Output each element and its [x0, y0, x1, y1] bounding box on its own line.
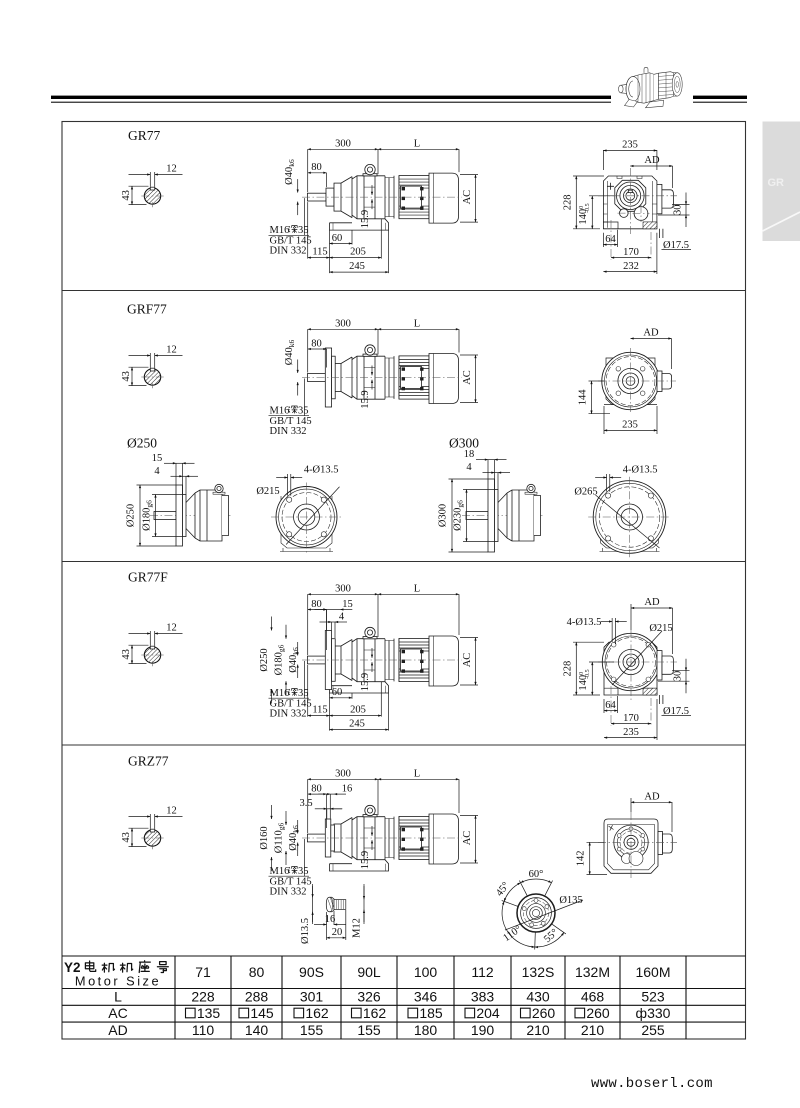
svg-text:132S: 132S	[522, 964, 555, 980]
svg-text:15.9: 15.9	[360, 210, 371, 228]
svg-text:AC: AC	[462, 190, 473, 205]
svg-text:3.5: 3.5	[299, 798, 312, 809]
svg-text:205: 205	[350, 247, 366, 258]
svg-text:AC: AC	[108, 1005, 127, 1021]
svg-text:43: 43	[121, 832, 132, 843]
svg-text:180: 180	[414, 1022, 438, 1038]
svg-text:210: 210	[581, 1022, 605, 1038]
svg-text:15.9: 15.9	[360, 851, 371, 869]
svg-text:235: 235	[623, 727, 639, 738]
svg-text:16: 16	[325, 914, 336, 925]
svg-text:AD: AD	[644, 155, 660, 166]
svg-text:90L: 90L	[357, 964, 381, 980]
svg-text:15: 15	[152, 453, 163, 464]
svg-text:L: L	[114, 989, 122, 1005]
svg-text:M16: M16	[270, 688, 290, 699]
svg-text:AC: AC	[462, 831, 473, 846]
svg-text:80: 80	[311, 162, 322, 173]
svg-text:160M: 160M	[635, 964, 670, 980]
svg-text:383: 383	[471, 989, 495, 1005]
svg-text:80: 80	[311, 338, 322, 349]
svg-text:35: 35	[298, 225, 309, 236]
svg-text:115: 115	[312, 705, 327, 716]
svg-text:245: 245	[349, 261, 365, 272]
svg-text:15.9: 15.9	[360, 390, 371, 408]
svg-text:12: 12	[166, 345, 177, 356]
svg-text:GR: GR	[768, 177, 785, 189]
svg-text:90S: 90S	[299, 964, 324, 980]
svg-text:4-Ø13.5: 4-Ø13.5	[567, 617, 602, 628]
svg-text:Ø215: Ø215	[256, 486, 279, 497]
svg-text:35: 35	[298, 866, 309, 877]
svg-text:112: 112	[471, 964, 494, 980]
svg-text:30: 30	[672, 205, 683, 216]
svg-text:30: 30	[672, 671, 683, 682]
svg-text:Ø215: Ø215	[649, 623, 672, 634]
svg-text:Ø160: Ø160	[259, 826, 270, 849]
svg-text:20: 20	[332, 927, 343, 938]
svg-text:www.boserl.com: www.boserl.com	[591, 1076, 713, 1092]
svg-text:35: 35	[298, 688, 309, 699]
svg-text:300: 300	[335, 769, 351, 780]
svg-text:M16: M16	[270, 866, 290, 877]
svg-text:232: 232	[623, 261, 639, 272]
svg-text:300: 300	[335, 139, 351, 150]
svg-text:140: 140	[245, 1022, 269, 1038]
svg-text:142: 142	[576, 851, 587, 867]
svg-text:523: 523	[641, 989, 665, 1005]
svg-text:4-Ø13.5: 4-Ø13.5	[623, 465, 658, 476]
svg-text:190: 190	[471, 1022, 495, 1038]
svg-text:ф330: ф330	[636, 1005, 671, 1021]
svg-text:35: 35	[298, 406, 309, 417]
svg-text:43: 43	[121, 649, 132, 660]
svg-text:AD: AD	[643, 328, 659, 339]
svg-text:Ø250: Ø250	[259, 648, 270, 671]
svg-text:288: 288	[245, 989, 269, 1005]
svg-text:300: 300	[335, 584, 351, 595]
svg-text:GR77: GR77	[128, 128, 161, 143]
svg-text:15.9: 15.9	[360, 673, 371, 691]
svg-text:80: 80	[311, 783, 322, 794]
svg-text:4-Ø13.5: 4-Ø13.5	[304, 465, 339, 476]
svg-text:L: L	[414, 769, 420, 780]
svg-text:15: 15	[342, 599, 353, 610]
svg-text:71: 71	[195, 964, 211, 980]
svg-text:235: 235	[622, 420, 638, 431]
svg-text:GRF77: GRF77	[127, 302, 167, 317]
svg-text:135: 135	[197, 1005, 221, 1021]
svg-text:M16: M16	[270, 225, 290, 236]
svg-text:GR77F: GR77F	[128, 570, 168, 585]
svg-text:300: 300	[335, 319, 351, 330]
svg-text:260: 260	[532, 1005, 556, 1021]
svg-text:DIN 332: DIN 332	[270, 887, 307, 898]
svg-text:Ø265: Ø265	[574, 487, 597, 498]
svg-text:185: 185	[419, 1005, 443, 1021]
svg-text:Ø135: Ø135	[559, 895, 582, 906]
svg-text:80: 80	[311, 599, 322, 610]
svg-text:170: 170	[623, 713, 639, 724]
svg-text:110: 110	[192, 1022, 215, 1038]
svg-text:12: 12	[166, 164, 177, 175]
svg-text:115: 115	[312, 247, 327, 258]
svg-text:12: 12	[166, 623, 177, 634]
svg-text:228: 228	[563, 195, 574, 211]
svg-text:DIN 332: DIN 332	[270, 426, 307, 437]
svg-text:64: 64	[605, 234, 616, 245]
svg-text:170: 170	[623, 247, 639, 258]
svg-text:205: 205	[350, 705, 366, 716]
svg-text:12: 12	[166, 806, 177, 817]
svg-text:301: 301	[300, 989, 324, 1005]
svg-text:80: 80	[249, 964, 265, 980]
svg-text:228: 228	[563, 661, 574, 677]
svg-text:204: 204	[476, 1005, 500, 1021]
svg-text:AD: AD	[108, 1022, 127, 1038]
svg-text:162: 162	[363, 1005, 387, 1021]
svg-text:4: 4	[466, 462, 472, 473]
svg-text:144: 144	[577, 389, 588, 406]
svg-text:M12: M12	[352, 918, 363, 938]
svg-text:DIN 332: DIN 332	[270, 246, 307, 257]
svg-text:155: 155	[357, 1022, 381, 1038]
svg-text:326: 326	[357, 989, 381, 1005]
svg-text:60: 60	[332, 233, 343, 244]
svg-text:L: L	[414, 319, 420, 330]
svg-text:346: 346	[414, 989, 438, 1005]
svg-text:AC: AC	[462, 653, 473, 668]
svg-text:18: 18	[464, 449, 475, 460]
svg-text:155: 155	[300, 1022, 324, 1038]
svg-text:GRZ77: GRZ77	[128, 754, 169, 769]
svg-text:43: 43	[121, 190, 132, 201]
svg-text:AC: AC	[462, 370, 473, 385]
svg-text:235: 235	[622, 140, 638, 151]
svg-text:145: 145	[250, 1005, 274, 1021]
svg-text:Ø300: Ø300	[438, 504, 449, 527]
svg-text:260: 260	[586, 1005, 610, 1021]
svg-text:60: 60	[332, 687, 343, 698]
svg-text:Motor Size: Motor Size	[75, 974, 161, 989]
svg-text:16: 16	[342, 783, 353, 794]
svg-text:132M: 132M	[575, 964, 610, 980]
svg-text:468: 468	[581, 989, 605, 1005]
svg-text:60°: 60°	[529, 869, 544, 880]
svg-text:43: 43	[121, 371, 132, 382]
svg-text:L: L	[414, 584, 420, 595]
svg-text:210: 210	[526, 1022, 550, 1038]
svg-text:L: L	[414, 139, 420, 150]
svg-text:Ø13.5: Ø13.5	[300, 918, 311, 944]
svg-text:100: 100	[414, 964, 438, 980]
svg-text:228: 228	[191, 989, 215, 1005]
svg-text:430: 430	[526, 989, 550, 1005]
svg-text:255: 255	[641, 1022, 665, 1038]
svg-text:Ø250: Ø250	[126, 504, 137, 527]
svg-text:DIN 332: DIN 332	[270, 709, 307, 720]
svg-text:162: 162	[305, 1005, 329, 1021]
svg-text:Ø250: Ø250	[127, 436, 157, 451]
svg-text:M16: M16	[270, 406, 290, 417]
svg-text:4: 4	[339, 611, 345, 622]
svg-text:AD: AD	[644, 791, 660, 802]
svg-text:64: 64	[605, 700, 616, 711]
svg-text:245: 245	[349, 719, 365, 730]
svg-text:4: 4	[154, 466, 160, 477]
svg-text:AD: AD	[644, 597, 660, 608]
